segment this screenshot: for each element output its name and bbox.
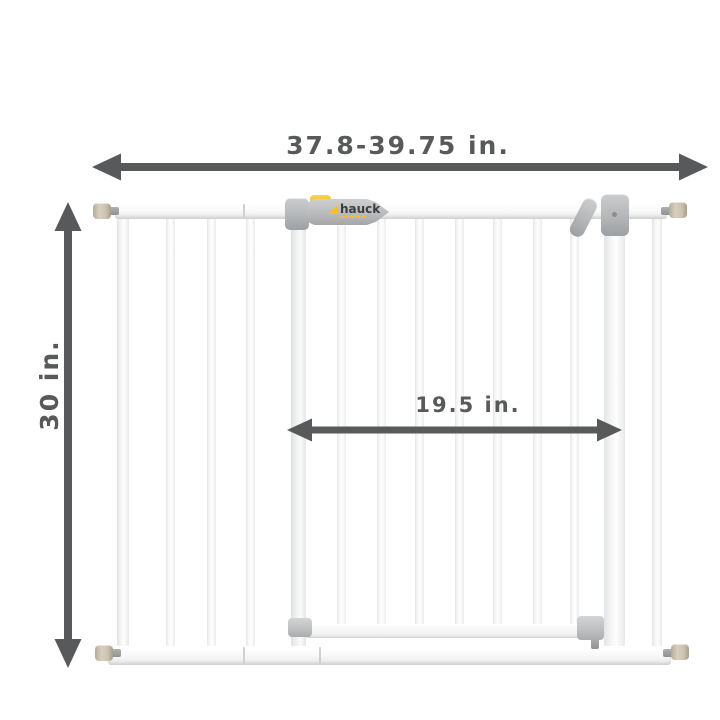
gate-left-post: [117, 204, 129, 654]
wall-mount-knob: [671, 644, 689, 660]
gate-bar: [246, 208, 255, 648]
gate-bottom-rail: [108, 646, 671, 665]
wall-mount-knob: [95, 645, 113, 661]
hinge-clamp: [285, 198, 309, 230]
door-bar: [570, 212, 579, 632]
door-bar: [493, 212, 502, 632]
door-bar: [533, 212, 542, 632]
gate-right-post: [652, 206, 662, 648]
door-bottom-rail: [305, 624, 593, 638]
gate-bar: [207, 208, 216, 648]
door-bar: [415, 212, 424, 632]
gate-handle: hauck: [307, 199, 389, 225]
hinge-foot-bracket: [288, 618, 312, 637]
brand-name: hauck: [340, 203, 380, 215]
height-label: 30 in.: [35, 305, 65, 465]
gate-latch-post: [604, 201, 625, 648]
brand-tagline-mark: [340, 216, 367, 218]
door-bar: [377, 212, 386, 632]
brand-logo: hauck: [328, 203, 380, 218]
rail-extension-seam: [319, 647, 321, 664]
wall-mount-knob: [669, 202, 687, 218]
wall-mount-knob: [93, 203, 111, 219]
door-bar: [337, 212, 346, 632]
rail-extension-seam: [243, 204, 245, 218]
latch-screw: [612, 212, 617, 217]
gate-bar: [166, 208, 175, 648]
gate-hinge-post: [291, 201, 306, 648]
overall-width-label: 37.8-39.75 in.: [198, 131, 598, 160]
door-bar: [455, 212, 464, 632]
brand-triangle-icon: [328, 205, 338, 214]
product-dimension-diagram: 37.8-39.75 in. 30 in. 19.5 in.: [0, 0, 720, 720]
rail-extension-seam: [243, 647, 245, 664]
door-width-label: 19.5 in.: [368, 393, 568, 417]
door-catch-bracket: [577, 616, 604, 640]
